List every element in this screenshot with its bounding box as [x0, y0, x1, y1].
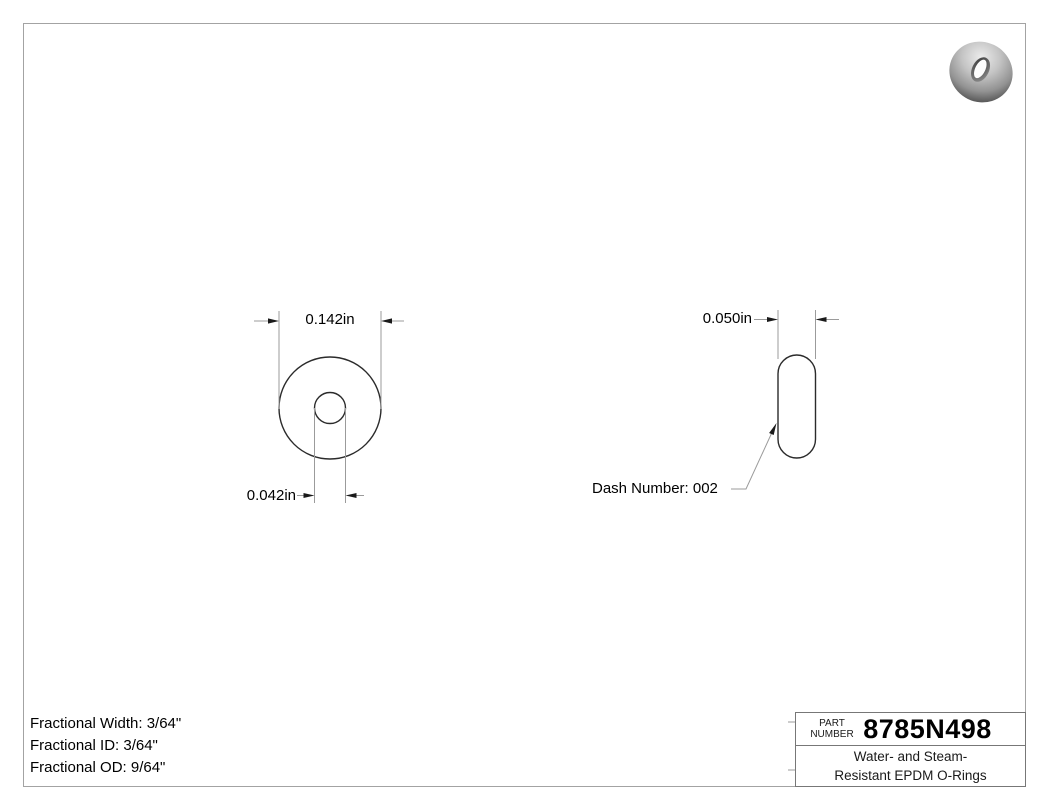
- o-ring-3d-thumbnail-icon: [948, 40, 1016, 106]
- width-dimension-label: 0.050in: [652, 311, 752, 327]
- od-arrow-right: [381, 318, 392, 323]
- title-block: PART NUMBER 8785N498 Water- and Steam- R…: [795, 712, 1026, 787]
- part-drawing-canvas: 0.142in 0.042in 0.050in Dash Number: 002…: [0, 0, 1050, 811]
- part-number-caption-line1: PART: [806, 718, 858, 729]
- dash-leader-line: [731, 428, 774, 489]
- front-view-outer-circle: [279, 357, 381, 459]
- part-description-line2: Resistant EPDM O-Rings: [796, 766, 1025, 785]
- spec-line-fractional-od: Fractional OD: 9/64": [30, 757, 181, 779]
- part-number-caption-line2: NUMBER: [806, 729, 858, 740]
- od-arrow-left: [268, 318, 279, 323]
- spec-line-fractional-id: Fractional ID: 3/64": [30, 735, 181, 757]
- id-arrow-left: [304, 493, 315, 498]
- front-view-inner-circle: [315, 393, 346, 424]
- part-description-line1: Water- and Steam-: [796, 747, 1025, 766]
- width-arrow-right: [816, 317, 827, 322]
- side-view-outline: [778, 355, 816, 458]
- id-dimension-label: 0.042in: [196, 488, 296, 504]
- part-number-caption: PART NUMBER: [806, 718, 858, 740]
- part-description: Water- and Steam- Resistant EPDM O-Rings: [796, 746, 1025, 786]
- width-arrow-left: [767, 317, 778, 322]
- part-number-value: 8785N498: [858, 714, 1025, 745]
- id-arrow-right: [346, 493, 357, 498]
- dash-leader-arrow: [769, 423, 776, 435]
- spec-line-fractional-width: Fractional Width: 3/64": [30, 713, 181, 735]
- width-extension-lines: [778, 310, 816, 359]
- drawing-linework: [0, 0, 1050, 811]
- id-extension-lines: [315, 408, 346, 503]
- od-dimension-label: 0.142in: [280, 312, 380, 328]
- title-block-ticks: [788, 722, 795, 770]
- part-number-row: PART NUMBER 8785N498: [796, 713, 1025, 746]
- dash-number-label: Dash Number: 002: [592, 481, 718, 497]
- fractional-specs: Fractional Width: 3/64" Fractional ID: 3…: [30, 713, 181, 779]
